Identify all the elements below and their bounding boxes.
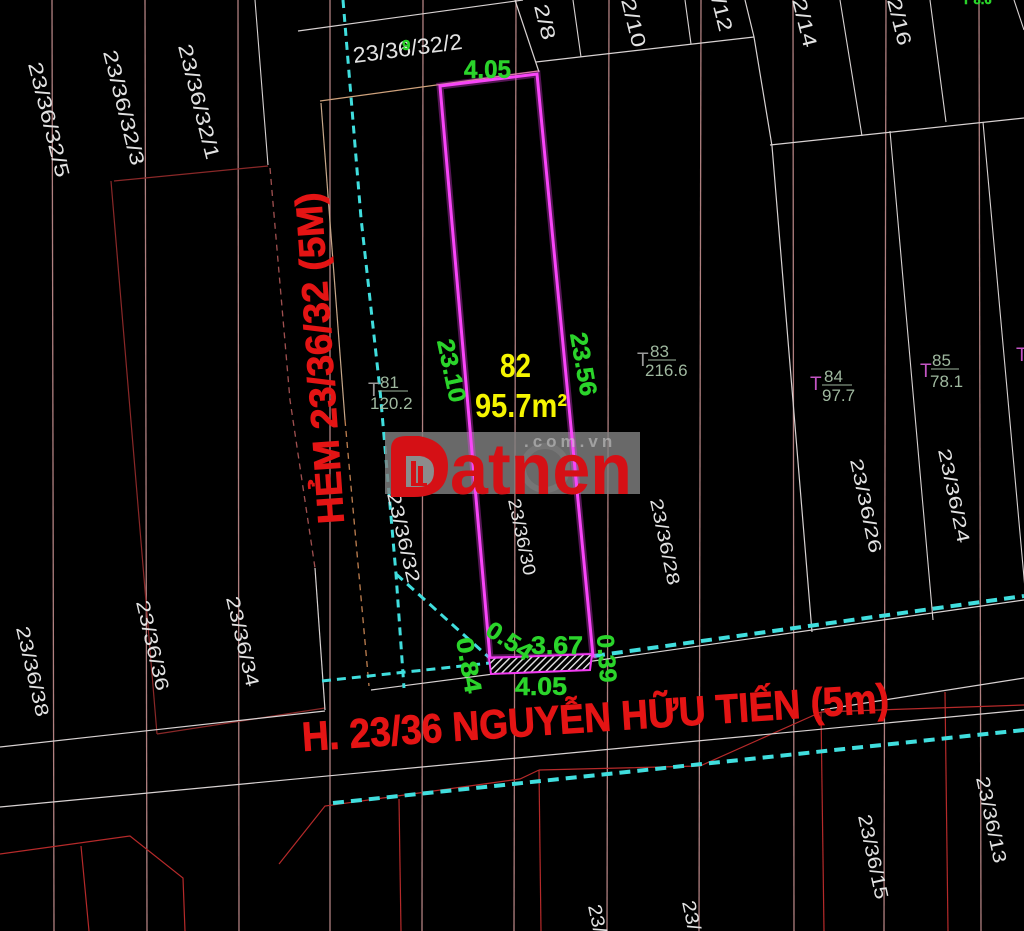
svg-text:T: T <box>810 374 822 395</box>
svg-text:81: 81 <box>380 373 399 392</box>
svg-text:0.39: 0.39 <box>591 634 621 684</box>
svg-text:83: 83 <box>650 342 669 361</box>
svg-text:9: 9 <box>402 37 410 54</box>
svg-text:216.6: 216.6 <box>645 361 688 380</box>
svg-text:97.7: 97.7 <box>822 386 855 405</box>
svg-text:4.05: 4.05 <box>464 56 511 84</box>
svg-text:95.7m²: 95.7m² <box>475 387 567 424</box>
svg-text:82: 82 <box>500 347 531 384</box>
svg-text:78.1: 78.1 <box>930 372 963 391</box>
svg-text:T: T <box>1016 345 1024 366</box>
svg-text:84: 84 <box>824 367 843 386</box>
svg-text:85: 85 <box>932 351 951 370</box>
svg-text:120.2: 120.2 <box>370 394 413 413</box>
svg-text:T 8.6: T 8.6 <box>962 0 992 7</box>
svg-text:3.67: 3.67 <box>531 632 583 660</box>
svg-text:atnen: atnen <box>450 430 632 510</box>
